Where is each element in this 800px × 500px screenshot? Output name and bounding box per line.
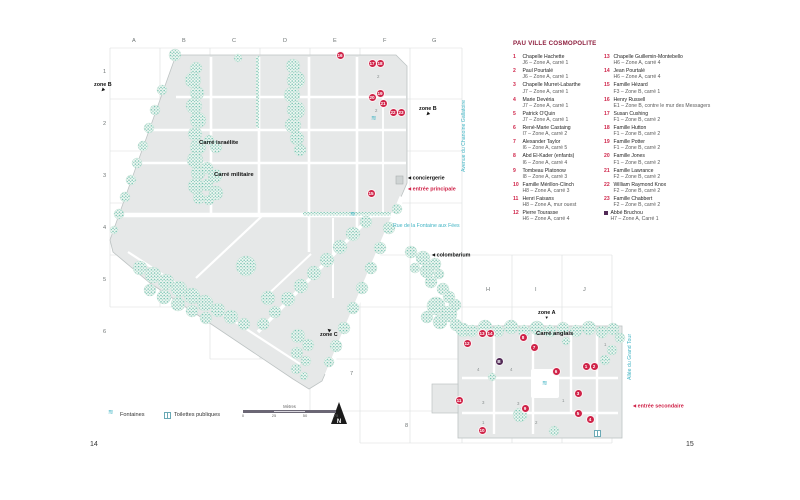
map-marker-B: B	[495, 357, 504, 366]
legend-entry-text: Famille HézardF3 – Zone B, carré 1	[614, 82, 661, 94]
legend-entry-name: Tombeau Platonow	[523, 168, 568, 174]
tree	[294, 279, 308, 293]
legend-entry-location: H7 – Zone A, Carré 1	[611, 216, 659, 222]
poi-label-text: colombarium	[437, 253, 471, 259]
legend-entry: 11Henri FaisansH8 – Zone A, mur ouest	[513, 196, 600, 208]
north-arrow-label: N	[337, 419, 341, 425]
grid-label-4: 4	[103, 225, 106, 231]
map-marker-3: 3	[574, 389, 583, 398]
legend-entry-number: 12	[513, 210, 520, 222]
grid-label-2: 2	[103, 121, 106, 127]
legend-entry: 12Pierre TourasseH6 – Zone A, carré 4	[513, 210, 600, 222]
zone-arrow-icon: ▼	[538, 316, 555, 320]
street-name: Avenue du Chanoine Gallatoire	[461, 100, 467, 172]
legend-entry-text: Abd El-Kader (enfants)I6 – Zone A, carré…	[523, 153, 575, 165]
tree	[374, 242, 386, 254]
legend-entry: 13Chapelle Guillemin-MontebelloH6 – Zone…	[604, 54, 716, 66]
legend-entry: Abbé BruchouH7 – Zone A, Carré 1	[604, 210, 716, 222]
legend-entry-text: Famille PotterF1 – Zone B, carré 2	[614, 139, 661, 151]
tree	[392, 204, 402, 214]
legend-entry-number: 17	[604, 111, 611, 123]
toilets-key-label: Toilettes publiques	[174, 412, 220, 418]
tree	[291, 347, 303, 359]
map-marker-14: 14	[486, 329, 495, 338]
street-name: Allée du Grand Tour	[627, 334, 633, 380]
map-marker-21: 21	[379, 99, 388, 108]
toilets-icon	[164, 412, 171, 419]
tree	[302, 339, 314, 351]
legend-entry-text: Marie DevériaJ7 – Zone A, carré 1	[523, 97, 569, 109]
legend-entry-text: Chapelle Murret-LabartheJ7 – Zone A, car…	[523, 82, 581, 94]
legend-entry-number: 21	[604, 168, 611, 180]
legend-entry: 15Famille HézardF3 – Zone B, carré 1	[604, 82, 716, 94]
hedge-row	[303, 212, 391, 215]
tree	[434, 269, 444, 279]
legend-entry: 7Alexander TaylorI6 – Zone A, carré 5	[513, 139, 600, 151]
street-name: Rue de la Fontaine aux Fées	[393, 223, 460, 229]
legend-entry-location: F1 – Zone B, carré 2	[614, 131, 661, 137]
fountains-key-label: Fontaines	[120, 412, 145, 418]
tree	[197, 295, 213, 311]
legend-entry-text: Tombeau PlatonowI8 – Zone A, carré 3	[523, 168, 568, 180]
block-number: 1	[482, 420, 484, 425]
legend-entry: 5Patrick O'QuinJ7 – Zone A, carré 1	[513, 111, 600, 123]
tree	[549, 426, 559, 436]
tree	[600, 355, 610, 365]
hedge-row	[256, 56, 259, 128]
tree	[261, 291, 275, 305]
legend-entry-number: 7	[513, 139, 520, 151]
legend-entry-location: F2 – Zone B, carré 2	[614, 188, 667, 194]
page-number-right: 15	[686, 441, 694, 448]
block-number: 1	[562, 398, 564, 403]
legend-entry-location: I8 – Zone A, carré 3	[523, 174, 568, 180]
scale-tick: 50	[303, 413, 307, 418]
legend-entry-number: 6	[513, 125, 520, 137]
legend-entry-number: 18	[604, 125, 611, 137]
map-marker-11: 11	[455, 396, 464, 405]
poi-label-text: conciergerie	[413, 176, 445, 182]
left-arrow-icon: ◀	[633, 403, 636, 408]
legend-entry: 14Jean PourtaléH6 – Zone A, carré 4	[604, 68, 716, 80]
legend-entry-location: I6 – Zone A, carré 4	[523, 160, 575, 166]
poi-label-colombarium: ◀colombarium	[432, 252, 470, 259]
grid-label-B: B	[182, 38, 186, 44]
poi-label-text: entrée principale	[413, 187, 456, 193]
legend-entry-text: Patrick O'QuinJ7 – Zone A, carré 1	[523, 111, 569, 123]
legend-entry: 4Marie DevériaJ7 – Zone A, carré 1	[513, 97, 600, 109]
legend-entry-location: J7 – Zone A, carré 1	[523, 89, 581, 95]
fountain-icon: ≋	[371, 116, 376, 122]
map-marker-23: 23	[397, 108, 406, 117]
tree	[269, 306, 281, 318]
tree	[190, 112, 206, 128]
tree	[236, 256, 256, 276]
legend-entry-number: 20	[604, 153, 611, 165]
tree	[157, 290, 171, 304]
legend-entry: 2Paul PourtaléJ6 – Zone A, carré 1	[513, 68, 600, 80]
tree	[582, 321, 596, 335]
legend-entry: 19Famille PotterF1 – Zone B, carré 2	[604, 139, 716, 151]
tree	[338, 322, 350, 334]
legend-entry-number: 1	[513, 54, 520, 66]
conciergerie-building	[396, 176, 403, 184]
tree	[287, 71, 305, 89]
tree	[224, 310, 238, 324]
legend-entry-text: Famille HuttonF1 – Zone B, carré 2	[614, 125, 661, 137]
tree	[185, 72, 201, 88]
legend-entry-text: Famille ChabbertF2 – Zone B, carré 2	[614, 196, 661, 208]
legend-entry-text: Paul PourtaléJ6 – Zone A, carré 1	[523, 68, 569, 80]
legend-entry: 1Chapelle HachetteJ6 – Zone A, carré 1	[513, 54, 600, 66]
tree	[410, 263, 420, 273]
map-marker-2: 2	[590, 362, 599, 371]
legend-entry-name: Famille Lawrance	[614, 168, 661, 174]
grid-label-1: 1	[103, 69, 106, 75]
tree	[286, 59, 300, 73]
anglais-west-annex	[432, 384, 458, 413]
legend-entry-text: Chapelle HachetteJ6 – Zone A, carré 1	[523, 54, 569, 66]
legend-entry-text: Famille LawranceF2 – Zone B, carré 2	[614, 168, 661, 180]
legend-entry-location: J6 – Zone A, carré 1	[523, 74, 569, 80]
zone-label-zone-B: zone B◀	[419, 106, 437, 116]
map-marker-7: 7	[530, 343, 539, 352]
legend-entry-text: Pierre TourasseH6 – Zone A, carré 4	[523, 210, 570, 222]
legend-entry-number: 10	[513, 182, 520, 194]
legend-entry: 23Famille ChabbertF2 – Zone B, carré 2	[604, 196, 716, 208]
legend-entry: 6René-Marie CastaingI7 – Zone A, carré 2	[513, 125, 600, 137]
tree	[300, 372, 308, 380]
tree	[320, 253, 334, 267]
block-number: 2	[535, 420, 537, 425]
legend-entry-number: 9	[513, 168, 520, 180]
scale-bar-ticks: 0255075	[243, 413, 336, 419]
grid-label-E: E	[333, 38, 337, 44]
tree	[157, 85, 167, 95]
grid-label-G: G	[432, 38, 436, 44]
tree	[307, 266, 321, 280]
legend-entry-text: Chapelle Guillemin-MontebelloH6 – Zone A…	[614, 54, 683, 66]
tree	[294, 144, 306, 156]
legend-entry-text: Famille JonesF1 – Zone B, carré 2	[614, 153, 661, 165]
fountain-icon: ≋	[108, 410, 113, 416]
tree	[488, 373, 496, 381]
legend-entry-text: Henri FaisansH8 – Zone A, mur ouest	[523, 196, 577, 208]
zone-label-zone-A: zone A▼	[538, 310, 555, 320]
map-marker-15: 15	[367, 189, 376, 198]
tree	[346, 227, 360, 241]
legend-entry-text: Alexander TaylorI6 – Zone A, carré 5	[523, 139, 568, 151]
scale-tick: 75	[334, 413, 338, 418]
legend-entry-location: H8 – Zone A, carré 3	[523, 188, 575, 194]
tree	[433, 315, 447, 329]
tree	[291, 329, 305, 343]
zone-label-zone-B: zone B◀	[94, 82, 112, 92]
legend-entry: 22William Raymond KnoxF2 – Zone B, carré…	[604, 182, 716, 194]
legend-entry-location: F2 – Zone B, carré 2	[614, 202, 661, 208]
legend-entry: 9Tombeau PlatonowI8 – Zone A, carré 3	[513, 168, 600, 180]
legend-entry-text: René-Marie CastaingI7 – Zone A, carré 2	[523, 125, 571, 137]
left-arrow-icon: ◀	[432, 252, 435, 257]
map-marker-8: 8	[519, 333, 528, 342]
legend-panel: PAU VILLE COSMOPOLITE 1Chapelle Hachette…	[513, 40, 718, 47]
map-marker-19: 19	[376, 89, 385, 98]
legend-entry-number: 11	[513, 196, 520, 208]
tree	[365, 262, 377, 274]
tree	[110, 226, 118, 234]
legend-entry-location: F1 – Zone B, carré 2	[614, 160, 661, 166]
legend-entry: 18Famille HuttonF1 – Zone B, carré 2	[604, 125, 716, 137]
legend-entry-number: 15	[604, 82, 611, 94]
map-marker-16: 16	[336, 51, 345, 60]
area-label-Carré-militaire: Carré militaire	[214, 172, 254, 178]
tree	[330, 340, 342, 352]
grid-label-H: H	[486, 287, 490, 293]
legend-entry-number: 22	[604, 182, 611, 194]
map-marker-9: 9	[521, 404, 530, 413]
grid-label-F: F	[383, 38, 386, 44]
map-marker-20: 20	[368, 93, 377, 102]
legend-entry-location: I6 – Zone A, carré 5	[523, 145, 568, 151]
tree	[504, 320, 518, 334]
legend-entry-number: 16	[604, 97, 611, 109]
tree	[324, 357, 334, 367]
legend-entry-name: Chapelle Murret-Labarthe	[523, 82, 581, 88]
map-marker-6: 6	[552, 367, 561, 376]
tree	[257, 318, 269, 330]
legend-entry-name: Abd El-Kader (enfants)	[523, 153, 575, 159]
poi-label-conciergerie: ◀conciergerie	[408, 175, 445, 182]
tree	[169, 49, 181, 61]
map-marker-10: 10	[478, 426, 487, 435]
legend-title: PAU VILLE COSMOPOLITE	[513, 40, 718, 47]
fountain-icon: ≋	[350, 212, 355, 218]
tree	[126, 175, 136, 185]
legend-entry-location: F3 – Zone B, carré 1	[614, 89, 661, 95]
tree	[285, 117, 301, 133]
left-arrow-icon: ◀	[408, 175, 411, 180]
legend-entry-text: Jean PourtaléH6 – Zone A, carré 4	[614, 68, 661, 80]
scale-bar: Mètres 0255075	[243, 404, 336, 419]
tree	[347, 302, 359, 314]
tree	[291, 364, 301, 374]
block-number: 2	[377, 74, 379, 79]
grid-label-8: 8	[405, 423, 408, 429]
block-number: 2	[375, 108, 377, 113]
tree	[120, 192, 130, 202]
legend-entry-location: F2 – Zone B, carré 2	[614, 174, 661, 180]
legend-entry-number: 4	[513, 97, 520, 109]
tree	[171, 297, 185, 311]
tree	[138, 141, 148, 151]
legend-entry-number: 5	[513, 111, 520, 123]
scale-tick: 25	[272, 413, 276, 418]
legend-entry-location: H6 – Zone A, carré 4	[523, 216, 570, 222]
legend-entry-number: 3	[513, 82, 520, 94]
legend-entry-text: Henry RussellE1 – Zone B, contre le mur …	[614, 97, 711, 109]
block-number: 4	[510, 367, 512, 372]
tree	[193, 192, 205, 204]
legend-entry-text: Susan CushingF1 – Zone B, carré 2	[614, 111, 661, 123]
tree	[188, 127, 202, 141]
legend-entry-text: William Raymond KnoxF2 – Zone B, carré 2	[614, 182, 667, 194]
legend-entry-location: H6 – Zone A, carré 4	[614, 60, 683, 66]
map-marker-12: 12	[463, 339, 472, 348]
legend-entry-text: Famille Mérillon-ClinchH8 – Zone A, carr…	[523, 182, 575, 194]
tree	[356, 282, 368, 294]
tree	[290, 131, 304, 145]
scale-tick: 0	[242, 413, 244, 418]
poi-label-entrée-principale: ◀entrée principale	[408, 186, 456, 193]
tree	[144, 284, 156, 296]
legend-entry-location: F1 – Zone B, carré 2	[614, 145, 661, 151]
tree	[200, 312, 212, 324]
tree	[607, 323, 619, 335]
block-number: 3	[517, 401, 519, 406]
legend-entry: 20Famille JonesF1 – Zone B, carré 2	[604, 153, 716, 165]
grid-label-J: J	[583, 287, 586, 293]
tree	[466, 325, 478, 337]
tree	[132, 158, 142, 168]
tree	[615, 333, 625, 343]
tree	[284, 87, 300, 103]
legend-entry: 21Famille LawranceF2 – Zone B, carré 2	[604, 168, 716, 180]
tree	[425, 276, 437, 288]
tree	[234, 54, 242, 62]
toilets-icon	[594, 430, 601, 437]
map-marker-18: 18	[376, 59, 385, 68]
zone-label-zone-C: ◀zone C	[320, 328, 338, 338]
poi-label-entrée-secondaire: ◀entrée secondaire	[633, 403, 684, 410]
legend-entry-location: F1 – Zone B, carré 2	[614, 117, 661, 123]
fountain-icon: ≋	[542, 381, 547, 387]
legend-entry-location: H8 – Zone A, mur ouest	[523, 202, 577, 208]
tree	[133, 261, 147, 275]
tree	[405, 246, 417, 258]
area-label-Carré-israélite: Carré israélite	[199, 140, 238, 146]
block-number: 3	[482, 400, 484, 405]
legend-entry-number: 2	[513, 68, 520, 80]
tree	[114, 209, 124, 219]
map-marker-4: 4	[586, 415, 595, 424]
tree	[301, 356, 311, 366]
tree	[281, 292, 295, 306]
legend-entry-number: 19	[604, 139, 611, 151]
scale-bar-title: Mètres	[243, 404, 336, 409]
block-number: 4	[477, 367, 479, 372]
legend-entry: 16Henry RussellE1 – Zone B, contre le mu…	[604, 97, 716, 109]
tree	[562, 337, 570, 345]
tree	[360, 216, 372, 228]
grid-label-5: 5	[103, 277, 106, 283]
legend-entry: 10Famille Mérillon-ClinchH8 – Zone A, ca…	[513, 182, 600, 194]
tree	[416, 251, 430, 265]
block-number: 1	[604, 342, 606, 347]
legend-entry: 3Chapelle Murret-LabartheJ7 – Zone A, ca…	[513, 82, 600, 94]
tree	[144, 123, 154, 133]
poi-label-text: entrée secondaire	[638, 404, 684, 410]
grid-label-7: 7	[350, 371, 353, 377]
legend-entry-number: 8	[513, 153, 520, 165]
tree	[596, 326, 608, 338]
tree	[211, 303, 225, 317]
grid-label-C: C	[232, 38, 236, 44]
grid-label-6: 6	[103, 329, 106, 335]
grid-label-A: A	[132, 38, 136, 44]
tree	[187, 152, 203, 168]
legend-entry-location: E1 – Zone B, contre le mur des Messagers	[614, 103, 711, 109]
legend-entry: 17Susan CushingF1 – Zone B, carré 2	[604, 111, 716, 123]
legend-entry-number: 23	[604, 196, 611, 208]
tree	[186, 98, 202, 114]
grid-label-3: 3	[103, 173, 106, 179]
guidebook-map-page: N ABCDEFGHIJ12345678zone B◀zone B◀zone A…	[0, 0, 800, 500]
tree	[421, 311, 433, 323]
map-marker-5: 5	[574, 409, 583, 418]
tree	[204, 195, 214, 205]
tree	[186, 305, 198, 317]
tree	[190, 86, 204, 100]
left-arrow-icon: ◀	[408, 186, 411, 191]
grid-label-D: D	[283, 38, 287, 44]
area-label-Carré-anglais: Carré anglais	[536, 331, 573, 337]
tree	[333, 240, 347, 254]
legend-column-2: 13Chapelle Guillemin-MontebelloH6 – Zone…	[604, 54, 716, 224]
legend-entry-location: H6 – Zone A, carré 4	[614, 74, 661, 80]
grid-label-I: I	[535, 287, 537, 293]
legend-entry: 8Abd El-Kader (enfants)I6 – Zone A, carr…	[513, 153, 600, 165]
tree	[150, 105, 160, 115]
purple-square-icon	[604, 211, 608, 215]
tree	[287, 101, 305, 119]
legend-column-1: 1Chapelle HachetteJ6 – Zone A, carré 12P…	[513, 54, 600, 224]
legend-entry-location: J7 – Zone A, carré 1	[523, 103, 569, 109]
legend-entry-location: J7 – Zone A, carré 1	[523, 117, 569, 123]
legend-entry-text: Abbé BruchouH7 – Zone A, Carré 1	[611, 210, 659, 222]
legend-entry-number: 14	[604, 68, 611, 80]
tree	[238, 318, 250, 330]
legend-entry-location: J6 – Zone A, carré 1	[523, 60, 569, 66]
tree	[607, 345, 617, 355]
legend-entry-location: I7 – Zone A, carré 2	[523, 131, 571, 137]
legend-entry-number: 13	[604, 54, 611, 66]
page-number-left: 14	[90, 441, 98, 448]
